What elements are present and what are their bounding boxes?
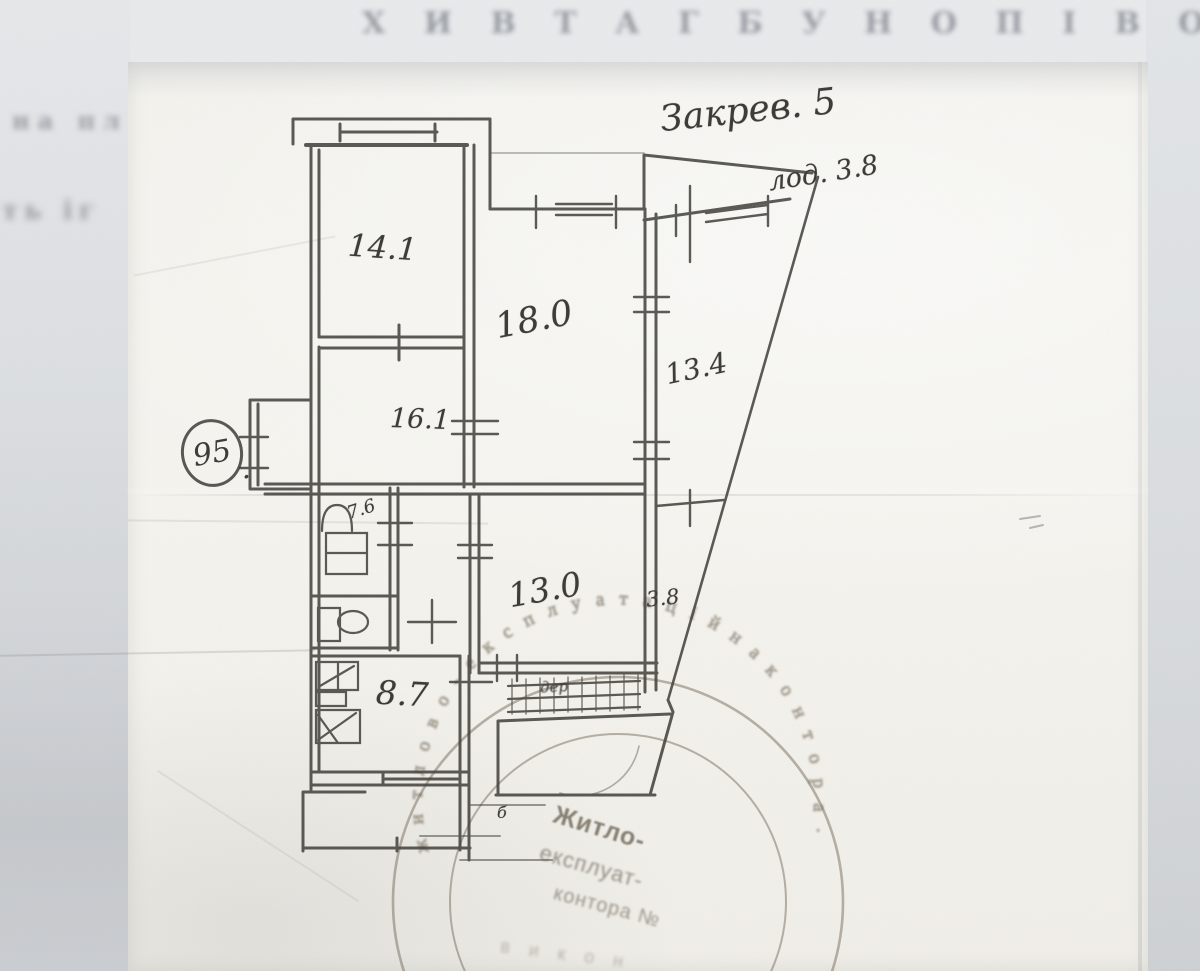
room-area-label-14-1: 14.1	[347, 228, 418, 269]
entry-letter-mark: б	[497, 803, 507, 822]
scanned-floor-plan-page: Х И В Т А Г Б У Н О П І В О на пл ть іг …	[0, 0, 1200, 971]
room-area-label-3-8: 3.8	[645, 584, 681, 611]
room-area-label-16-1: 16.1	[389, 403, 450, 436]
vestibule-scribble: дер	[540, 677, 569, 696]
apartment-number: 95	[190, 432, 234, 473]
apartment-number-period: .	[242, 452, 251, 485]
room-area-label-8-7: 8.7	[375, 673, 429, 715]
